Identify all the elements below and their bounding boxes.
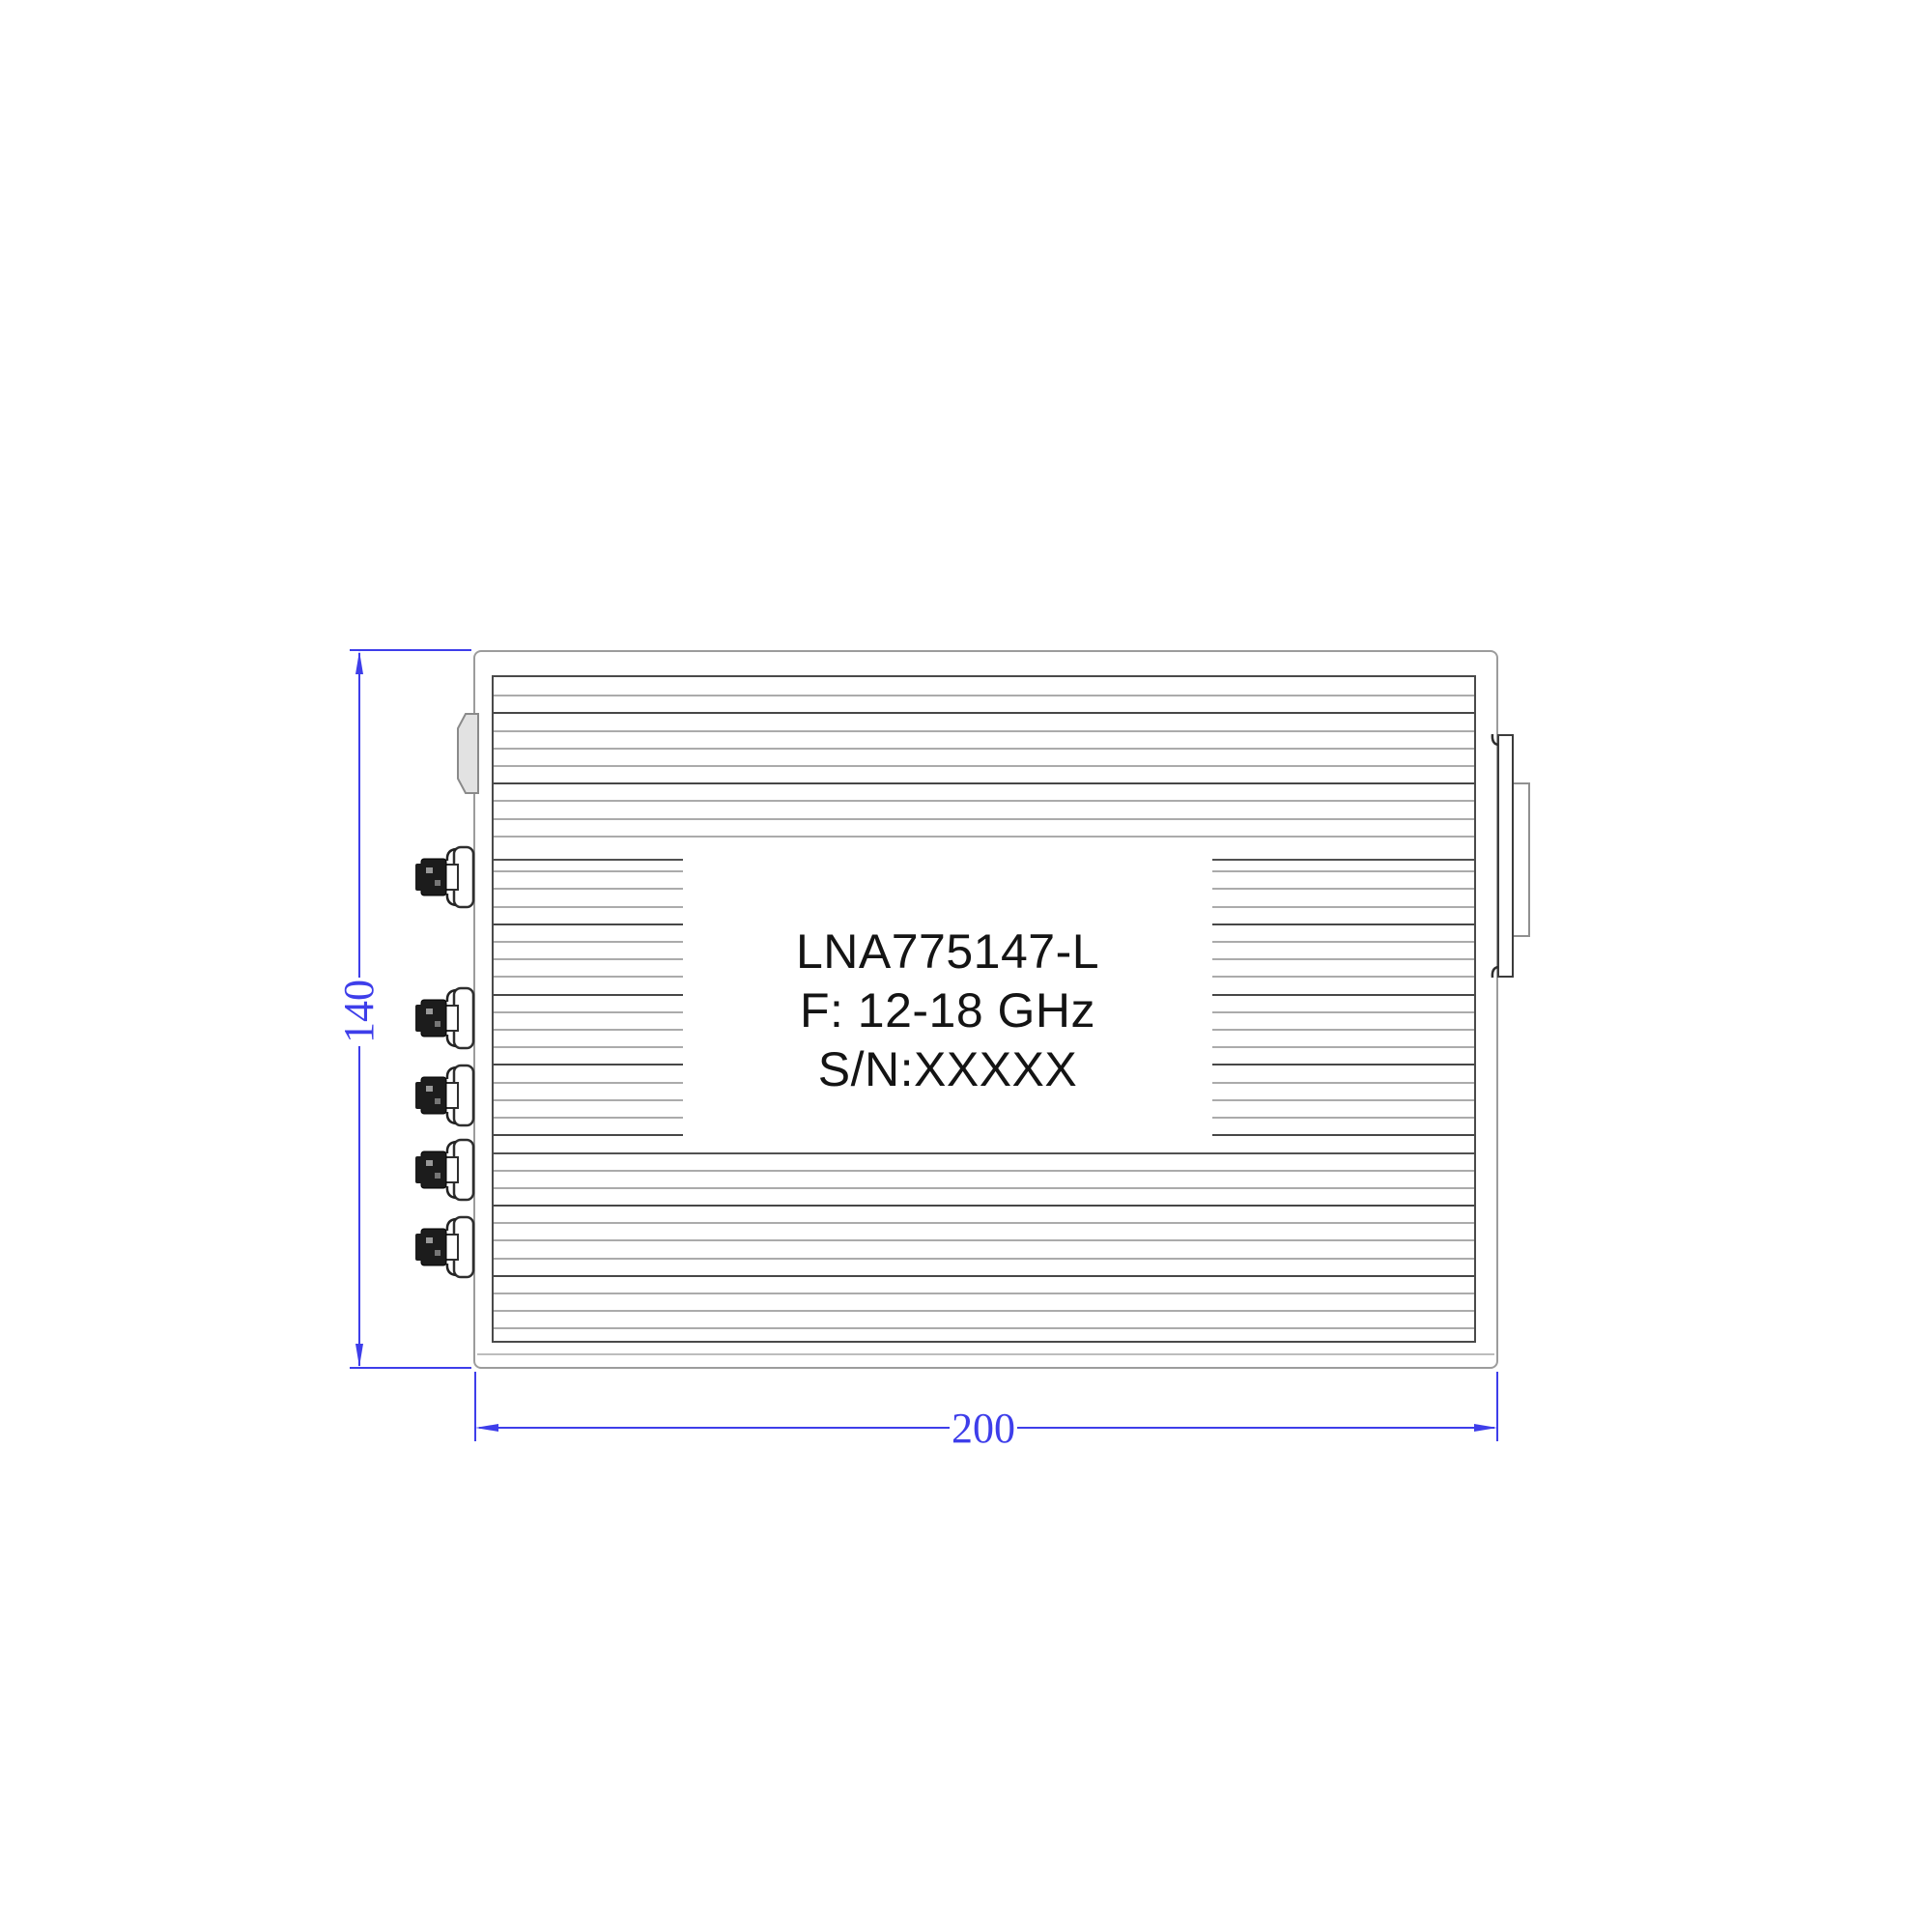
sma-connector-5 — [415, 1211, 475, 1283]
right-flange — [1489, 727, 1539, 984]
heatsink-fin-line — [1212, 923, 1474, 925]
heatsink-fin-line — [494, 1152, 1474, 1154]
heatsink-fin-line — [494, 765, 1474, 767]
heatsink-fin-line — [494, 976, 684, 978]
heatsink-fin-line — [1212, 994, 1474, 996]
heatsink-fin-line — [494, 1258, 1474, 1260]
heatsink-fin-line — [1212, 976, 1474, 978]
heatsink-fin-line — [494, 1275, 1474, 1277]
heatsink-fin-line — [494, 870, 684, 872]
heatsink-fin-line — [1212, 1082, 1474, 1084]
heatsink-fin-line — [1212, 906, 1474, 908]
drawing-canvas: LNA775147-L F: 12-18 GHz S/N:XXXXX 140 2… — [0, 0, 1932, 1932]
width-arrow-right — [1474, 1424, 1497, 1432]
bottom-cap-inner-line — [477, 1353, 1494, 1355]
heatsink-fin-line — [494, 730, 1474, 732]
heatsink-fin-line — [1212, 1046, 1474, 1048]
heatsink-fin-line — [494, 1011, 684, 1013]
heatsink-fin-line — [494, 1170, 1474, 1172]
label-model: LNA775147-L — [796, 923, 1099, 981]
sma-connector-2 — [415, 982, 475, 1054]
heatsink-fin-line — [494, 836, 1474, 838]
sma-connector-3 — [415, 1060, 475, 1131]
heatsink-fin-line — [494, 1064, 684, 1065]
heatsink-fin-line — [1212, 958, 1474, 960]
heatsink-fin-line — [1212, 1029, 1474, 1031]
height-ext-line-bottom — [350, 1367, 471, 1369]
heatsink-fin-line — [1212, 888, 1474, 890]
heatsink-fin-line — [494, 994, 684, 996]
heatsink-fin-line — [494, 1222, 1474, 1224]
height-arrow-bottom — [355, 1344, 363, 1367]
heatsink-fin-line — [494, 888, 684, 890]
heatsink-fin-line — [494, 923, 684, 925]
heatsink-fin-line — [494, 695, 1474, 696]
heatsink-fin-line — [494, 1134, 684, 1136]
heatsink-fin-line — [494, 1205, 1474, 1207]
heatsink-fin-line — [1212, 1011, 1474, 1013]
heatsink-fin-line — [494, 1187, 1474, 1189]
label-serial: S/N:XXXXX — [818, 1040, 1078, 1099]
height-ext-line-top — [350, 649, 471, 651]
height-dim-line-lower — [358, 1046, 360, 1366]
height-dim-line-upper — [358, 653, 360, 978]
heatsink-fin-line — [494, 906, 684, 908]
width-dim-text: 200 — [935, 1407, 1032, 1450]
heatsink-fin-line — [494, 800, 1474, 802]
heatsink-fin-line — [494, 818, 1474, 820]
heatsink-fin-line — [494, 1029, 684, 1031]
heatsink-fin-line — [494, 1046, 684, 1048]
heatsink-fin-line — [1212, 1117, 1474, 1119]
product-label: LNA775147-L F: 12-18 GHz S/N:XXXXX — [683, 859, 1212, 1152]
heatsink-fin-line — [494, 958, 684, 960]
heatsink-fin-line — [494, 712, 1474, 714]
heatsink-fin-line — [1212, 1099, 1474, 1101]
width-dim-line-left — [479, 1427, 950, 1429]
height-dim-text: 140 — [338, 953, 381, 1069]
heatsink-fin-line — [494, 1293, 1474, 1294]
heatsink-fin-line — [494, 1239, 1474, 1241]
height-arrow-top — [355, 651, 363, 674]
heatsink-fin-line — [1212, 941, 1474, 943]
sma-connector-1 — [415, 841, 475, 913]
sma-connector-4 — [415, 1134, 475, 1206]
heatsink-fin-line — [1212, 1064, 1474, 1065]
width-dim-line-right — [1017, 1427, 1494, 1429]
heatsink-fin-line — [494, 782, 1474, 784]
mounting-tab — [456, 712, 479, 795]
heatsink-fin-line — [1212, 870, 1474, 872]
heatsink-fin-line — [494, 1327, 1474, 1329]
heatsink-fin-line — [494, 941, 684, 943]
heatsink-fin-line — [494, 1082, 684, 1084]
heatsink-fin-line — [494, 1117, 684, 1119]
heatsink-fin-line — [494, 748, 1474, 750]
heatsink-fin-line — [1212, 1134, 1474, 1136]
heatsink-fin-line — [494, 1099, 684, 1101]
width-arrow-left — [475, 1424, 498, 1432]
heatsink-fin-line — [494, 1310, 1474, 1312]
label-frequency: F: 12-18 GHz — [800, 981, 1095, 1040]
